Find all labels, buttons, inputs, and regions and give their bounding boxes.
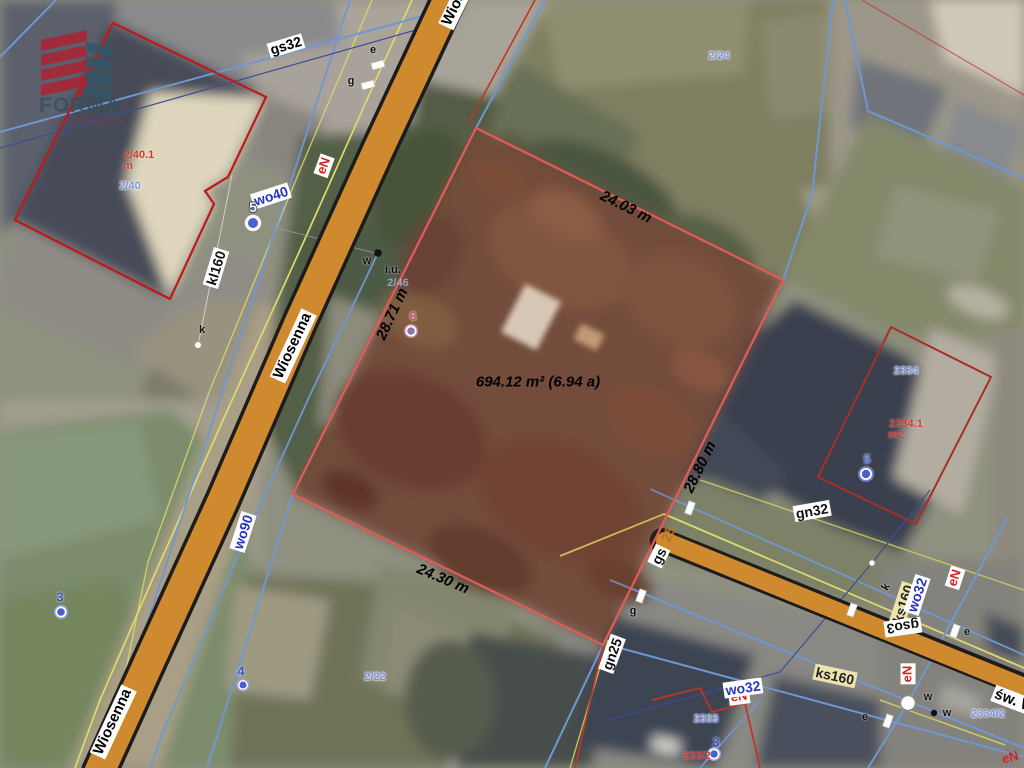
svg-text:RZECZOZNAWCA: RZECZOZNAWCA [56,128,130,137]
svg-text:FORMA: FORMA [39,94,121,117]
svg-text:NIERUCHOMOŚCI: NIERUCHOMOŚCI [48,117,123,126]
